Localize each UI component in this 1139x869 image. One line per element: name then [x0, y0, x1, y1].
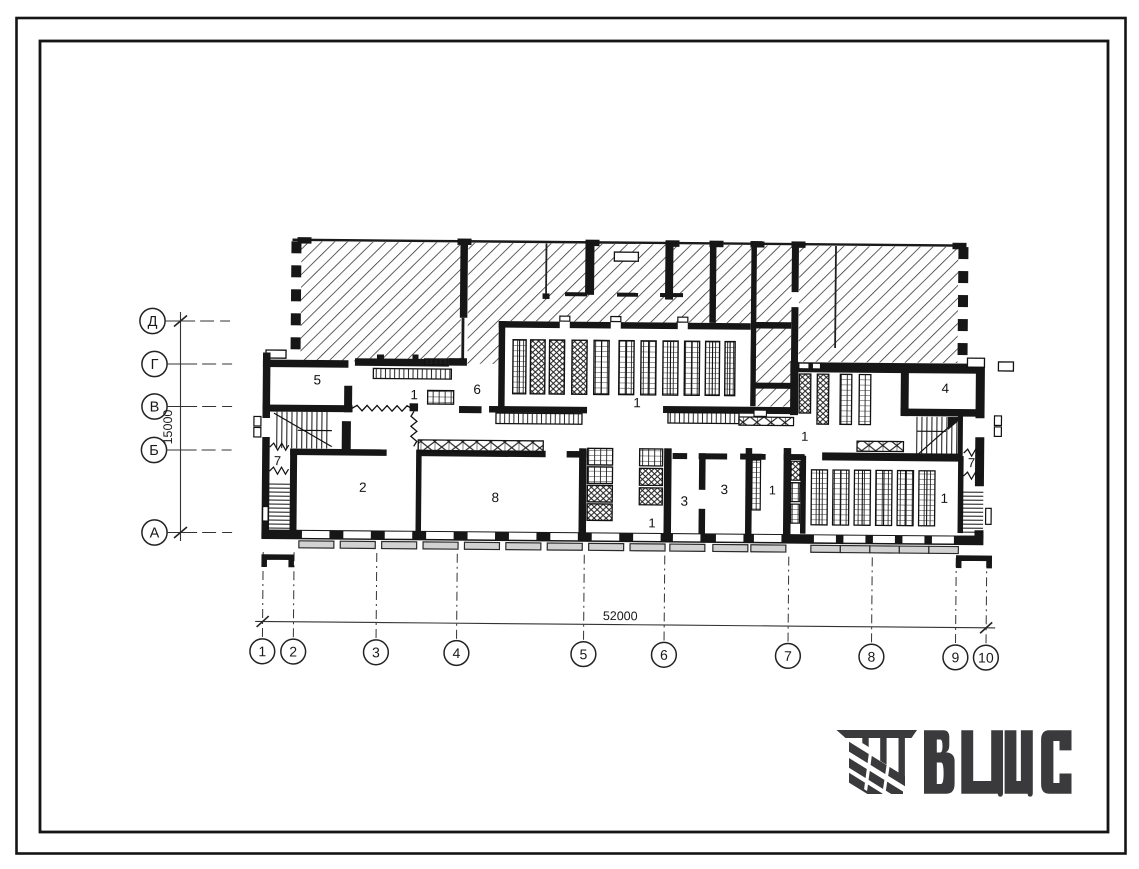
svg-text:5: 5 [313, 372, 321, 387]
svg-text:1: 1 [258, 643, 266, 659]
svg-text:4: 4 [452, 645, 460, 661]
svg-text:4: 4 [941, 381, 949, 396]
svg-text:2: 2 [289, 644, 297, 660]
svg-text:7: 7 [784, 648, 792, 664]
svg-text:52000: 52000 [603, 609, 638, 623]
svg-text:Г: Г [151, 357, 159, 373]
svg-text:1: 1 [633, 395, 641, 410]
svg-text:Б: Б [149, 443, 159, 459]
svg-text:8: 8 [491, 490, 499, 505]
svg-text:6: 6 [660, 647, 668, 663]
svg-text:3: 3 [680, 494, 688, 509]
svg-text:1: 1 [940, 491, 948, 506]
svg-text:10: 10 [978, 650, 994, 666]
svg-text:7: 7 [274, 453, 281, 468]
svg-text:1: 1 [769, 483, 776, 497]
svg-text:5: 5 [579, 646, 587, 662]
svg-text:1: 1 [410, 387, 418, 402]
svg-text:8: 8 [867, 649, 875, 665]
svg-text:3: 3 [372, 644, 380, 660]
svg-text:Д: Д [148, 314, 158, 330]
svg-text:6: 6 [473, 382, 481, 397]
svg-text:1: 1 [801, 429, 808, 444]
svg-text:А: А [150, 526, 160, 542]
svg-text:9: 9 [951, 649, 959, 665]
svg-text:7: 7 [968, 455, 975, 470]
svg-text:15000: 15000 [161, 410, 175, 445]
svg-text:2: 2 [359, 480, 367, 495]
svg-text:В: В [150, 400, 160, 416]
svg-text:3: 3 [721, 482, 729, 497]
svg-text:1: 1 [648, 515, 655, 530]
